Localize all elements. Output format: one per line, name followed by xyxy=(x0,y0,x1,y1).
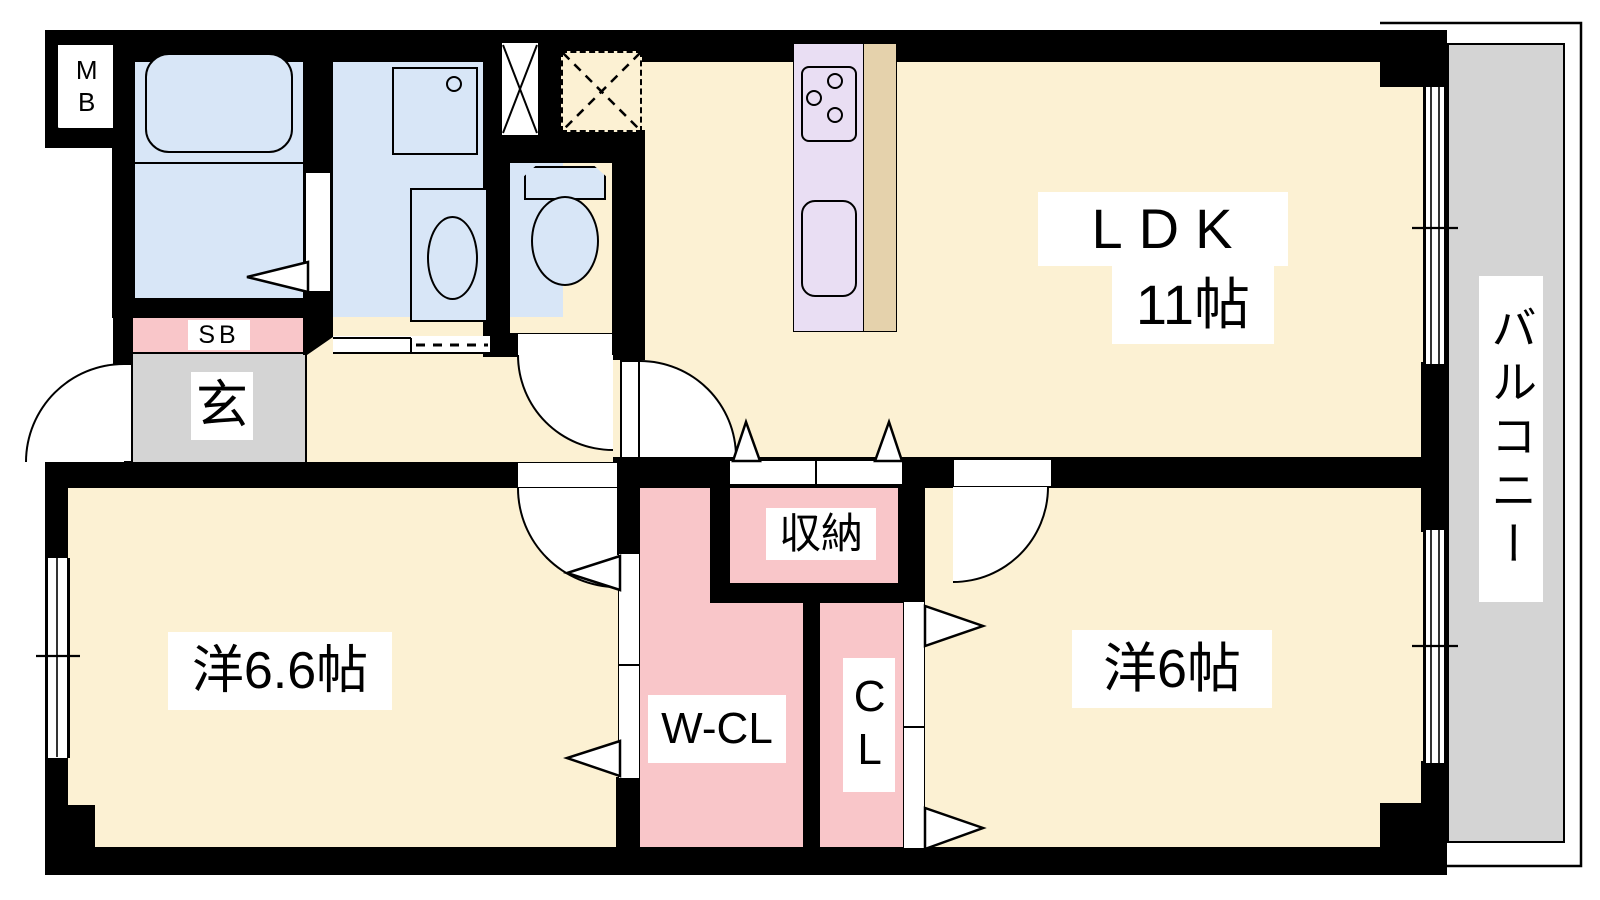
bedroom-right-label: 洋6帖 xyxy=(1072,630,1272,708)
washroom-threshold xyxy=(333,336,490,354)
kitchen-side-counter xyxy=(863,43,897,332)
wall-wcl-left-upper xyxy=(616,457,640,555)
balcony-label: バルコニー xyxy=(1479,276,1543,602)
stove-burner-icon xyxy=(827,107,843,123)
walk-in-closet-label: W-CL xyxy=(648,695,786,763)
floor-plan: MB SB 玄 LDK 11帖 収納 W-CL CL 洋6.6帖 洋6帖 バルコ… xyxy=(0,0,1600,900)
wall-wcl-left-lower xyxy=(616,777,640,847)
ldk-door-leaf xyxy=(620,360,640,459)
wall-bath-left xyxy=(112,148,135,300)
bedroom-left-label: 洋6.6帖 xyxy=(168,632,392,710)
washing-machine-drum-icon xyxy=(427,216,478,300)
bathroom-folding-door xyxy=(305,172,331,292)
toilet-icon xyxy=(531,196,599,286)
faucet-icon xyxy=(446,76,462,92)
wall-wcl-cl-divider xyxy=(803,603,820,847)
toilet-door-opening xyxy=(517,333,613,357)
ldk-label: LDK xyxy=(1038,192,1288,266)
wall-right-middle xyxy=(1421,362,1447,532)
pipe-shaft-icon xyxy=(500,43,540,135)
window-ldk-balcony xyxy=(1423,87,1447,364)
storage-label: 収納 xyxy=(766,508,876,560)
entrance-door-swing-icon xyxy=(25,363,124,462)
stove-burner-icon xyxy=(827,73,843,89)
wall-corner-top-right xyxy=(1380,30,1447,87)
window-bedroom-right-balcony xyxy=(1423,530,1447,763)
washbasin-icon xyxy=(392,67,478,155)
wall-bath-bottom xyxy=(112,298,333,318)
ldk-size-label: 11帖 xyxy=(1112,266,1274,344)
wall-left-upper xyxy=(45,462,68,560)
cl-folding-door xyxy=(903,601,925,849)
wall-entrance-left xyxy=(113,318,133,365)
wall-right-lower xyxy=(1421,761,1447,851)
kitchen-sink-icon xyxy=(801,200,857,297)
bathtub-icon xyxy=(145,53,293,153)
bedroom-left-door-opening xyxy=(517,462,618,488)
wall-bottom xyxy=(45,847,1447,875)
stove-burner-icon xyxy=(806,90,822,106)
window-bedroom-left xyxy=(45,558,70,758)
closet-label: CL xyxy=(843,658,895,792)
meter-box-label: MB xyxy=(60,48,112,126)
bedroom-right-door-opening xyxy=(953,459,1052,487)
entrance-label: 玄 xyxy=(191,372,253,440)
shoe-box-label: SB xyxy=(188,320,250,350)
wall-storage-bottom xyxy=(710,583,903,603)
wall-toilet-right xyxy=(612,130,645,360)
refrigerator-space-icon xyxy=(561,51,642,132)
wcl-folding-door xyxy=(618,553,640,779)
storage-folding-door xyxy=(729,460,903,485)
toilet-tank-icon xyxy=(524,166,606,200)
